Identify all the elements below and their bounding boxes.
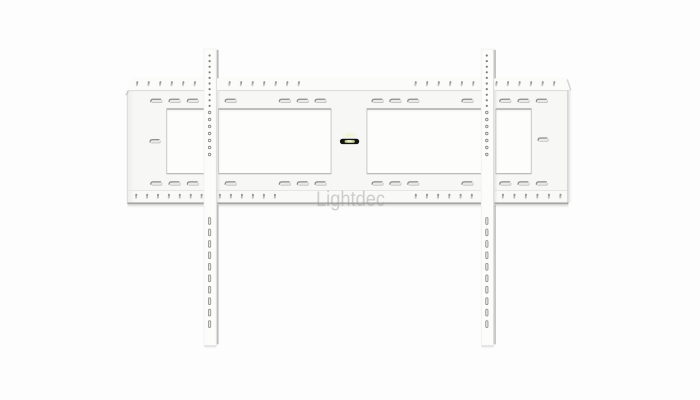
- svg-text:Lightdec: Lightdec: [316, 188, 385, 211]
